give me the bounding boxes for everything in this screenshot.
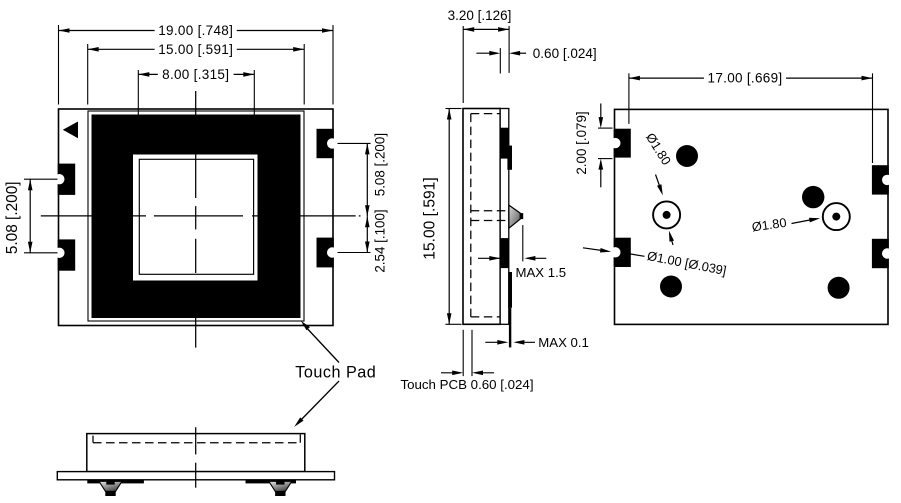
svg-text:2.54 [.100]: 2.54 [.100] [373,209,388,272]
svg-text:15.00 [.591]: 15.00 [.591] [422,177,439,259]
svg-text:8.00 [.315]: 8.00 [.315] [162,67,229,82]
svg-text:15.00 [.591]: 15.00 [.591] [158,42,233,57]
svg-text:2.00 [.079]: 2.00 [.079] [574,111,589,174]
svg-text:0.60 [.024]: 0.60 [.024] [533,46,597,61]
svg-text:5.08 [.200]: 5.08 [.200] [4,181,21,254]
svg-text:Touch Pad: Touch Pad [295,363,376,381]
svg-text:5.08 [.200]: 5.08 [.200] [373,133,388,196]
svg-text:Touch PCB 0.60 [.024]: Touch PCB 0.60 [.024] [400,377,533,392]
svg-text:19.00 [.748]: 19.00 [.748] [158,23,233,38]
svg-text:3.20 [.126]: 3.20 [.126] [448,8,512,23]
svg-text:17.00 [.669]: 17.00 [.669] [708,71,783,86]
svg-text:MAX 0.1: MAX 0.1 [538,335,589,350]
svg-text:MAX 1.5: MAX 1.5 [516,265,567,280]
